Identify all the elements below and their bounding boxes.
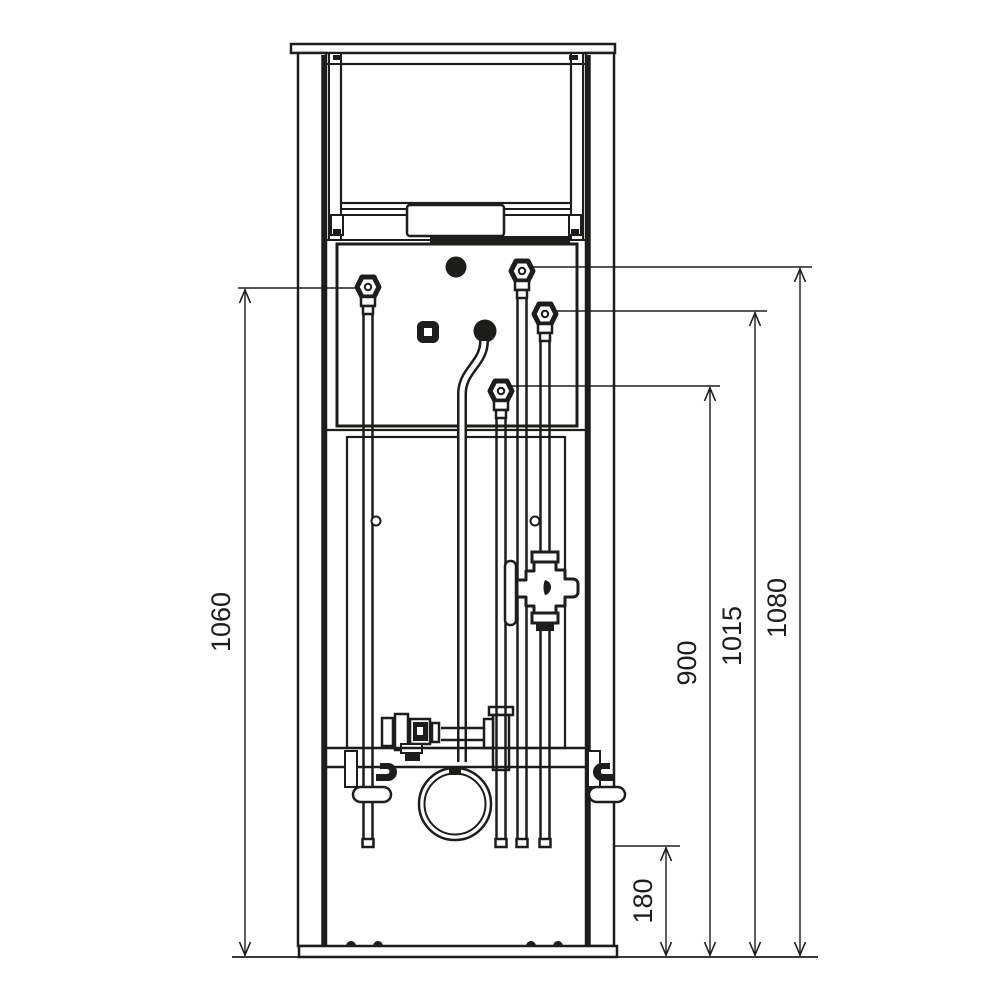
- pipe-end-cap: [363, 839, 374, 847]
- screw-right: [531, 517, 540, 526]
- top-crossbar: [291, 44, 615, 53]
- drain-top-notch: [449, 769, 461, 775]
- band-dark-segment: [430, 236, 570, 243]
- dimension-label-180: 180: [628, 878, 658, 923]
- valve-block-hole: [417, 727, 423, 735]
- dimension-label-900: 900: [672, 640, 702, 685]
- pipe-end-cap: [517, 839, 528, 847]
- drain-outlet: [419, 768, 491, 840]
- left-hook: [376, 763, 397, 781]
- valve-segment-1: [382, 718, 393, 746]
- dimension-180: 180: [613, 846, 680, 956]
- left-bracket-foot: [333, 229, 341, 235]
- tee-flange: [484, 719, 493, 748]
- inner-rail-left: [329, 53, 341, 240]
- valve-bottom-collar: [536, 623, 554, 631]
- valve-bottom-nut: [532, 613, 558, 623]
- drain-circle-outer: [419, 768, 491, 840]
- right-slot: [589, 787, 625, 802]
- pipe-end-cap: [540, 839, 551, 847]
- valve-lower-dark: [405, 753, 420, 761]
- left-slot: [353, 787, 391, 802]
- valve-collar: [432, 723, 439, 742]
- top-window-section: [326, 53, 586, 243]
- inspection-window: [341, 64, 571, 203]
- inner-rail-right: [571, 53, 583, 240]
- pipe-end-cap: [496, 839, 507, 847]
- dimension-label-1060: 1060: [206, 592, 236, 652]
- left-tab: [345, 751, 357, 787]
- right-bracket-foot: [571, 229, 579, 235]
- left-notch: [333, 55, 342, 60]
- hose-connection-circle: [474, 320, 497, 343]
- technical-drawing-page: 1060 900 1015 1080: [0, 0, 1000, 1000]
- screw-left: [372, 517, 381, 526]
- dimension-label-1080: 1080: [762, 578, 792, 638]
- pipe-clip: [505, 561, 516, 625]
- dimension-label-1015: 1015: [717, 606, 747, 666]
- base-plate: [299, 946, 617, 957]
- flush-actuator-tab: [407, 205, 504, 236]
- dimension-1060: 1060: [206, 288, 358, 956]
- square-outlet-hole: [424, 328, 432, 336]
- technical-drawing-canvas: 1060 900 1015 1080: [0, 0, 1000, 1000]
- right-notch: [569, 55, 578, 60]
- inlet-circle: [446, 257, 467, 278]
